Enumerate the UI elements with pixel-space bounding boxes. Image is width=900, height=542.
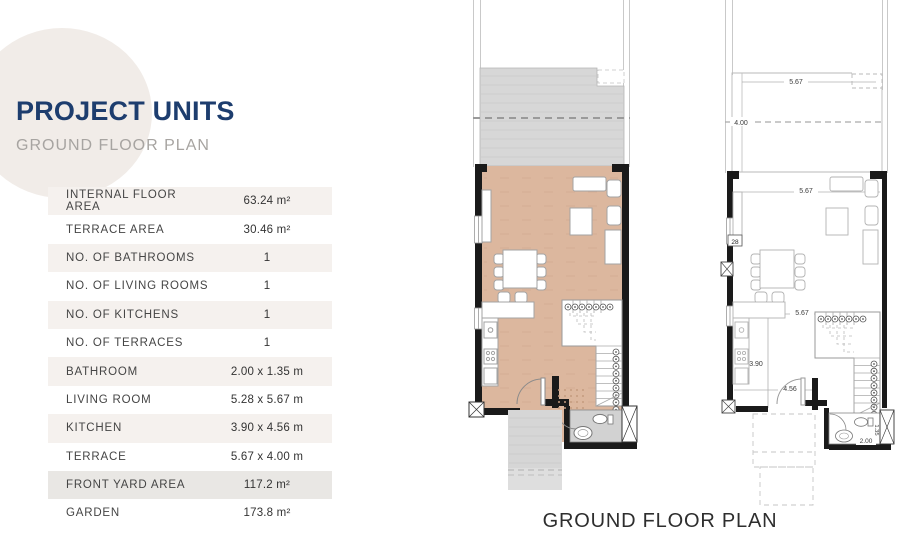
coffee-table [570, 208, 592, 235]
tv-unit [482, 190, 491, 242]
spec-label: NO. OF BATHROOMS [66, 252, 212, 264]
dim-kitchen-depth: 3.90 [749, 361, 763, 368]
spec-value: 117.2 m² [212, 479, 322, 491]
table-row: NO. OF KITCHENS 1 [48, 301, 332, 329]
dim-living-depth: 28 [728, 235, 742, 246]
spec-value: 5.67 x 4.00 m [212, 451, 322, 463]
washbasin [836, 430, 853, 442]
plan-caption: GROUND FLOOR PLAN [540, 510, 780, 533]
spec-label: GARDEN [66, 507, 212, 519]
armchair [865, 180, 878, 197]
spec-label: NO. OF LIVING ROOMS [66, 280, 212, 292]
dim-kitchen-width: 4.56 [783, 386, 797, 393]
table-row: NO. OF LIVING ROOMS 1 [48, 272, 332, 300]
dim-interior-width: 5.67 [795, 310, 809, 317]
stove [484, 349, 497, 364]
kitchen-counter [482, 302, 534, 318]
window-hatch [469, 402, 484, 417]
page-header: PROJECT UNITS GROUND FLOOR PLAN [16, 96, 235, 155]
spec-value: 1 [212, 252, 322, 264]
sofa [830, 177, 863, 191]
dim-living-depth-label: 28 [731, 239, 739, 246]
kitchen [733, 302, 785, 384]
bathroom: 2.00 1.35 [829, 413, 880, 445]
side-unit [605, 230, 621, 264]
spec-value: 2.00 x 1.35 m [212, 366, 322, 378]
dining-table [503, 250, 537, 288]
table-row: TERRACE 5.67 x 4.00 m [48, 443, 332, 471]
dining-set [751, 250, 805, 303]
table-row: LIVING ROOM 5.28 x 5.67 m [48, 386, 332, 414]
spec-label: KITCHEN [66, 422, 212, 434]
page-subtitle: GROUND FLOOR PLAN [16, 137, 235, 155]
table-row: NO. OF TERRACES 1 [48, 329, 332, 357]
spec-value: 3.90 x 4.56 m [212, 422, 322, 434]
table-row: GARDEN 173.8 m² [48, 499, 332, 527]
kitchen-counter [733, 302, 785, 318]
brochure-page: PROJECT UNITS GROUND FLOOR PLAN INTERNAL… [0, 0, 900, 542]
spec-value: 5.28 x 5.67 m [212, 394, 322, 406]
table-row: INTERNAL FLOOR AREA 63.24 m² [48, 187, 332, 215]
walkway [753, 414, 815, 505]
lot-lines [726, 0, 888, 173]
spec-value: 30.46 m² [212, 224, 322, 236]
window-hatch [722, 400, 735, 413]
window-hatch [721, 262, 733, 276]
table-row: TERRACE AREA 30.46 m² [48, 215, 332, 243]
sink [484, 322, 497, 338]
spec-table: INTERNAL FLOOR AREA 63.24 m² TERRACE ARE… [48, 187, 332, 528]
table-row: BATHROOM 2.00 x 1.35 m [48, 357, 332, 385]
spec-label: NO. OF TERRACES [66, 337, 212, 349]
armchair [607, 180, 621, 197]
terrace-area [473, 68, 630, 166]
spec-value: 173.8 m² [212, 507, 322, 519]
spec-label: INTERNAL FLOOR AREA [66, 189, 212, 213]
armchair [865, 206, 878, 225]
spec-label: FRONT YARD AREA [66, 479, 212, 491]
armchair [607, 206, 621, 225]
dim-bathroom-width: 2.00 [860, 438, 873, 445]
spec-value: 63.24 m² [212, 195, 322, 207]
washbasin [574, 427, 592, 440]
coffee-table [826, 208, 848, 235]
spec-label: TERRACE AREA [66, 224, 212, 236]
dim-bathroom-depth: 1.35 [873, 424, 879, 435]
stove [735, 349, 748, 364]
toilet [855, 418, 868, 427]
dim-terrace-width: 5.67 [789, 79, 803, 86]
dining-table [760, 250, 794, 288]
table-row: KITCHEN 3.90 x 4.56 m [48, 414, 332, 442]
spec-value: 1 [212, 309, 322, 321]
sink [735, 322, 748, 338]
page-title: PROJECT UNITS [16, 96, 235, 127]
spec-label: BATHROOM [66, 366, 212, 378]
floorplan-rendered [462, 0, 646, 500]
shaft-hatch [880, 410, 894, 444]
sofa [573, 177, 606, 191]
dim-terrace-depth: 4.00 [734, 120, 748, 127]
walkway [508, 410, 562, 490]
spec-value: 1 [212, 280, 322, 292]
table-row: NO. OF BATHROOMS 1 [48, 244, 332, 272]
dim-living-width: 5.67 [799, 188, 813, 195]
spec-label: TERRACE [66, 451, 212, 463]
side-unit [863, 230, 878, 264]
spec-label: NO. OF KITCHENS [66, 309, 212, 321]
floorplan-dimensioned: 5.67 4.00 5.67 5.67 3.90 4.56 [718, 0, 900, 508]
toilet [593, 414, 607, 423]
table-row: FRONT YARD AREA 117.2 m² [48, 471, 332, 499]
spec-label: LIVING ROOM [66, 394, 212, 406]
spec-value: 1 [212, 337, 322, 349]
